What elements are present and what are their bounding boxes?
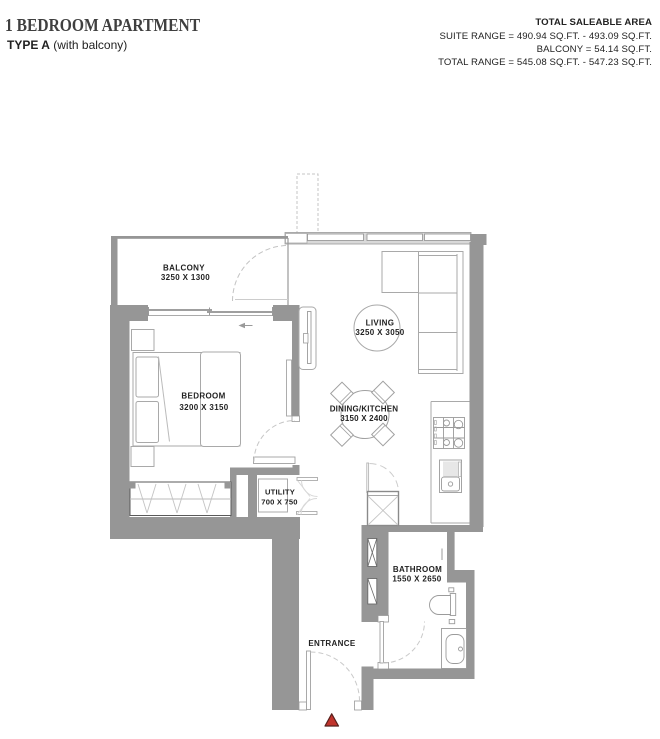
svg-text:3250 X 1300: 3250 X 1300 (161, 273, 210, 282)
svg-text:3200 X 3150: 3200 X 3150 (179, 403, 228, 412)
svg-text:BEDROOM: BEDROOM (181, 392, 225, 401)
svg-text:BALCONY: BALCONY (163, 264, 205, 273)
svg-text:BATHROOM: BATHROOM (393, 565, 442, 574)
svg-text:DINING/KITCHEN: DINING/KITCHEN (330, 405, 399, 414)
svg-text:1550 X 2650: 1550 X 2650 (392, 575, 441, 584)
svg-text:ENTRANCE: ENTRANCE (308, 639, 356, 648)
svg-text:LIVING: LIVING (366, 319, 395, 328)
svg-text:UTILITY: UTILITY (265, 488, 295, 497)
svg-text:700 X 750: 700 X 750 (261, 498, 297, 507)
svg-text:3250 X 3050: 3250 X 3050 (355, 328, 404, 337)
svg-text:3150 X 2400: 3150 X 2400 (340, 414, 388, 423)
